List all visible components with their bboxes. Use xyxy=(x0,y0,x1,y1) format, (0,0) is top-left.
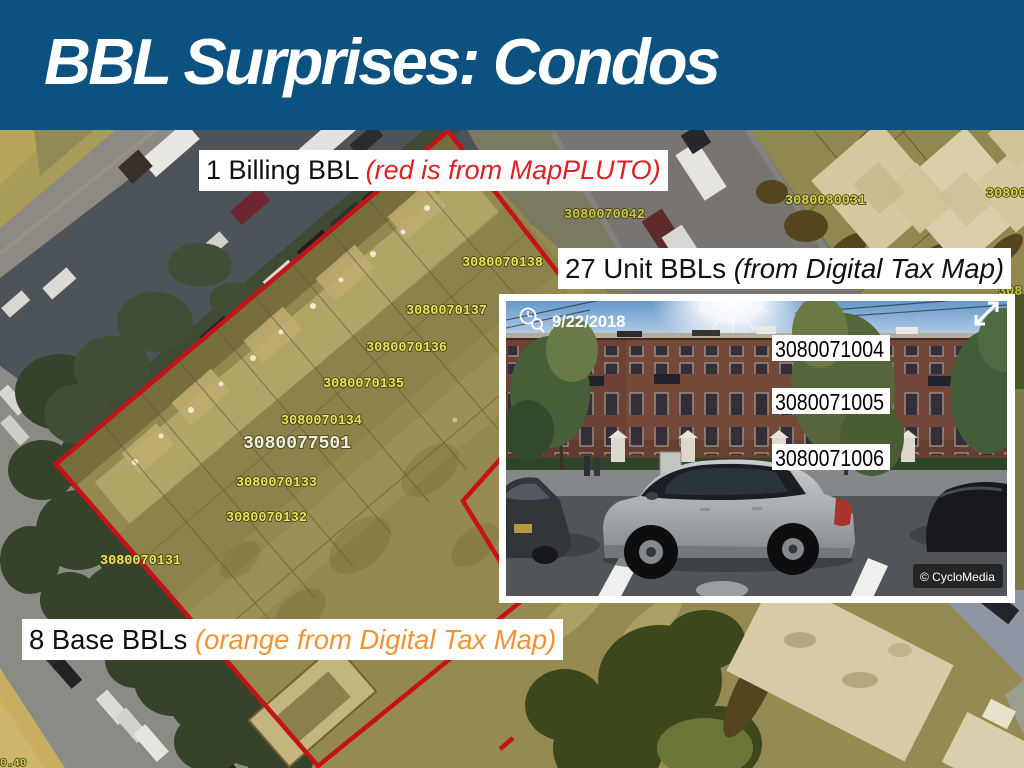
svg-text:© CycloMedia: © CycloMedia xyxy=(920,570,995,584)
svg-text:3080071006: 3080071006 xyxy=(775,445,884,471)
svg-text:9/22/2018: 9/22/2018 xyxy=(552,313,625,331)
svg-text:3080070133: 3080070133 xyxy=(236,476,317,491)
svg-text:3080070135: 3080070135 xyxy=(323,377,404,392)
svg-text:3080070042: 3080070042 xyxy=(564,208,645,223)
svg-text:3080070134: 3080070134 xyxy=(281,414,362,429)
svg-text:3080071004: 3080071004 xyxy=(775,336,884,362)
svg-text:3080070132: 3080070132 xyxy=(226,511,307,526)
svg-text:3080080031: 3080080031 xyxy=(785,194,866,209)
svg-text:3080071005: 3080071005 xyxy=(775,389,884,415)
svg-text:3080070136: 3080070136 xyxy=(366,341,447,356)
svg-text:30800: 30800 xyxy=(986,187,1024,202)
svg-text:0.40: 0.40 xyxy=(0,758,26,768)
svg-text:3080077501: 3080077501 xyxy=(243,434,351,454)
svg-text:3080070131: 3080070131 xyxy=(100,554,181,569)
svg-text:3080070138: 3080070138 xyxy=(462,256,543,271)
svg-text:3080070137: 3080070137 xyxy=(406,304,487,319)
